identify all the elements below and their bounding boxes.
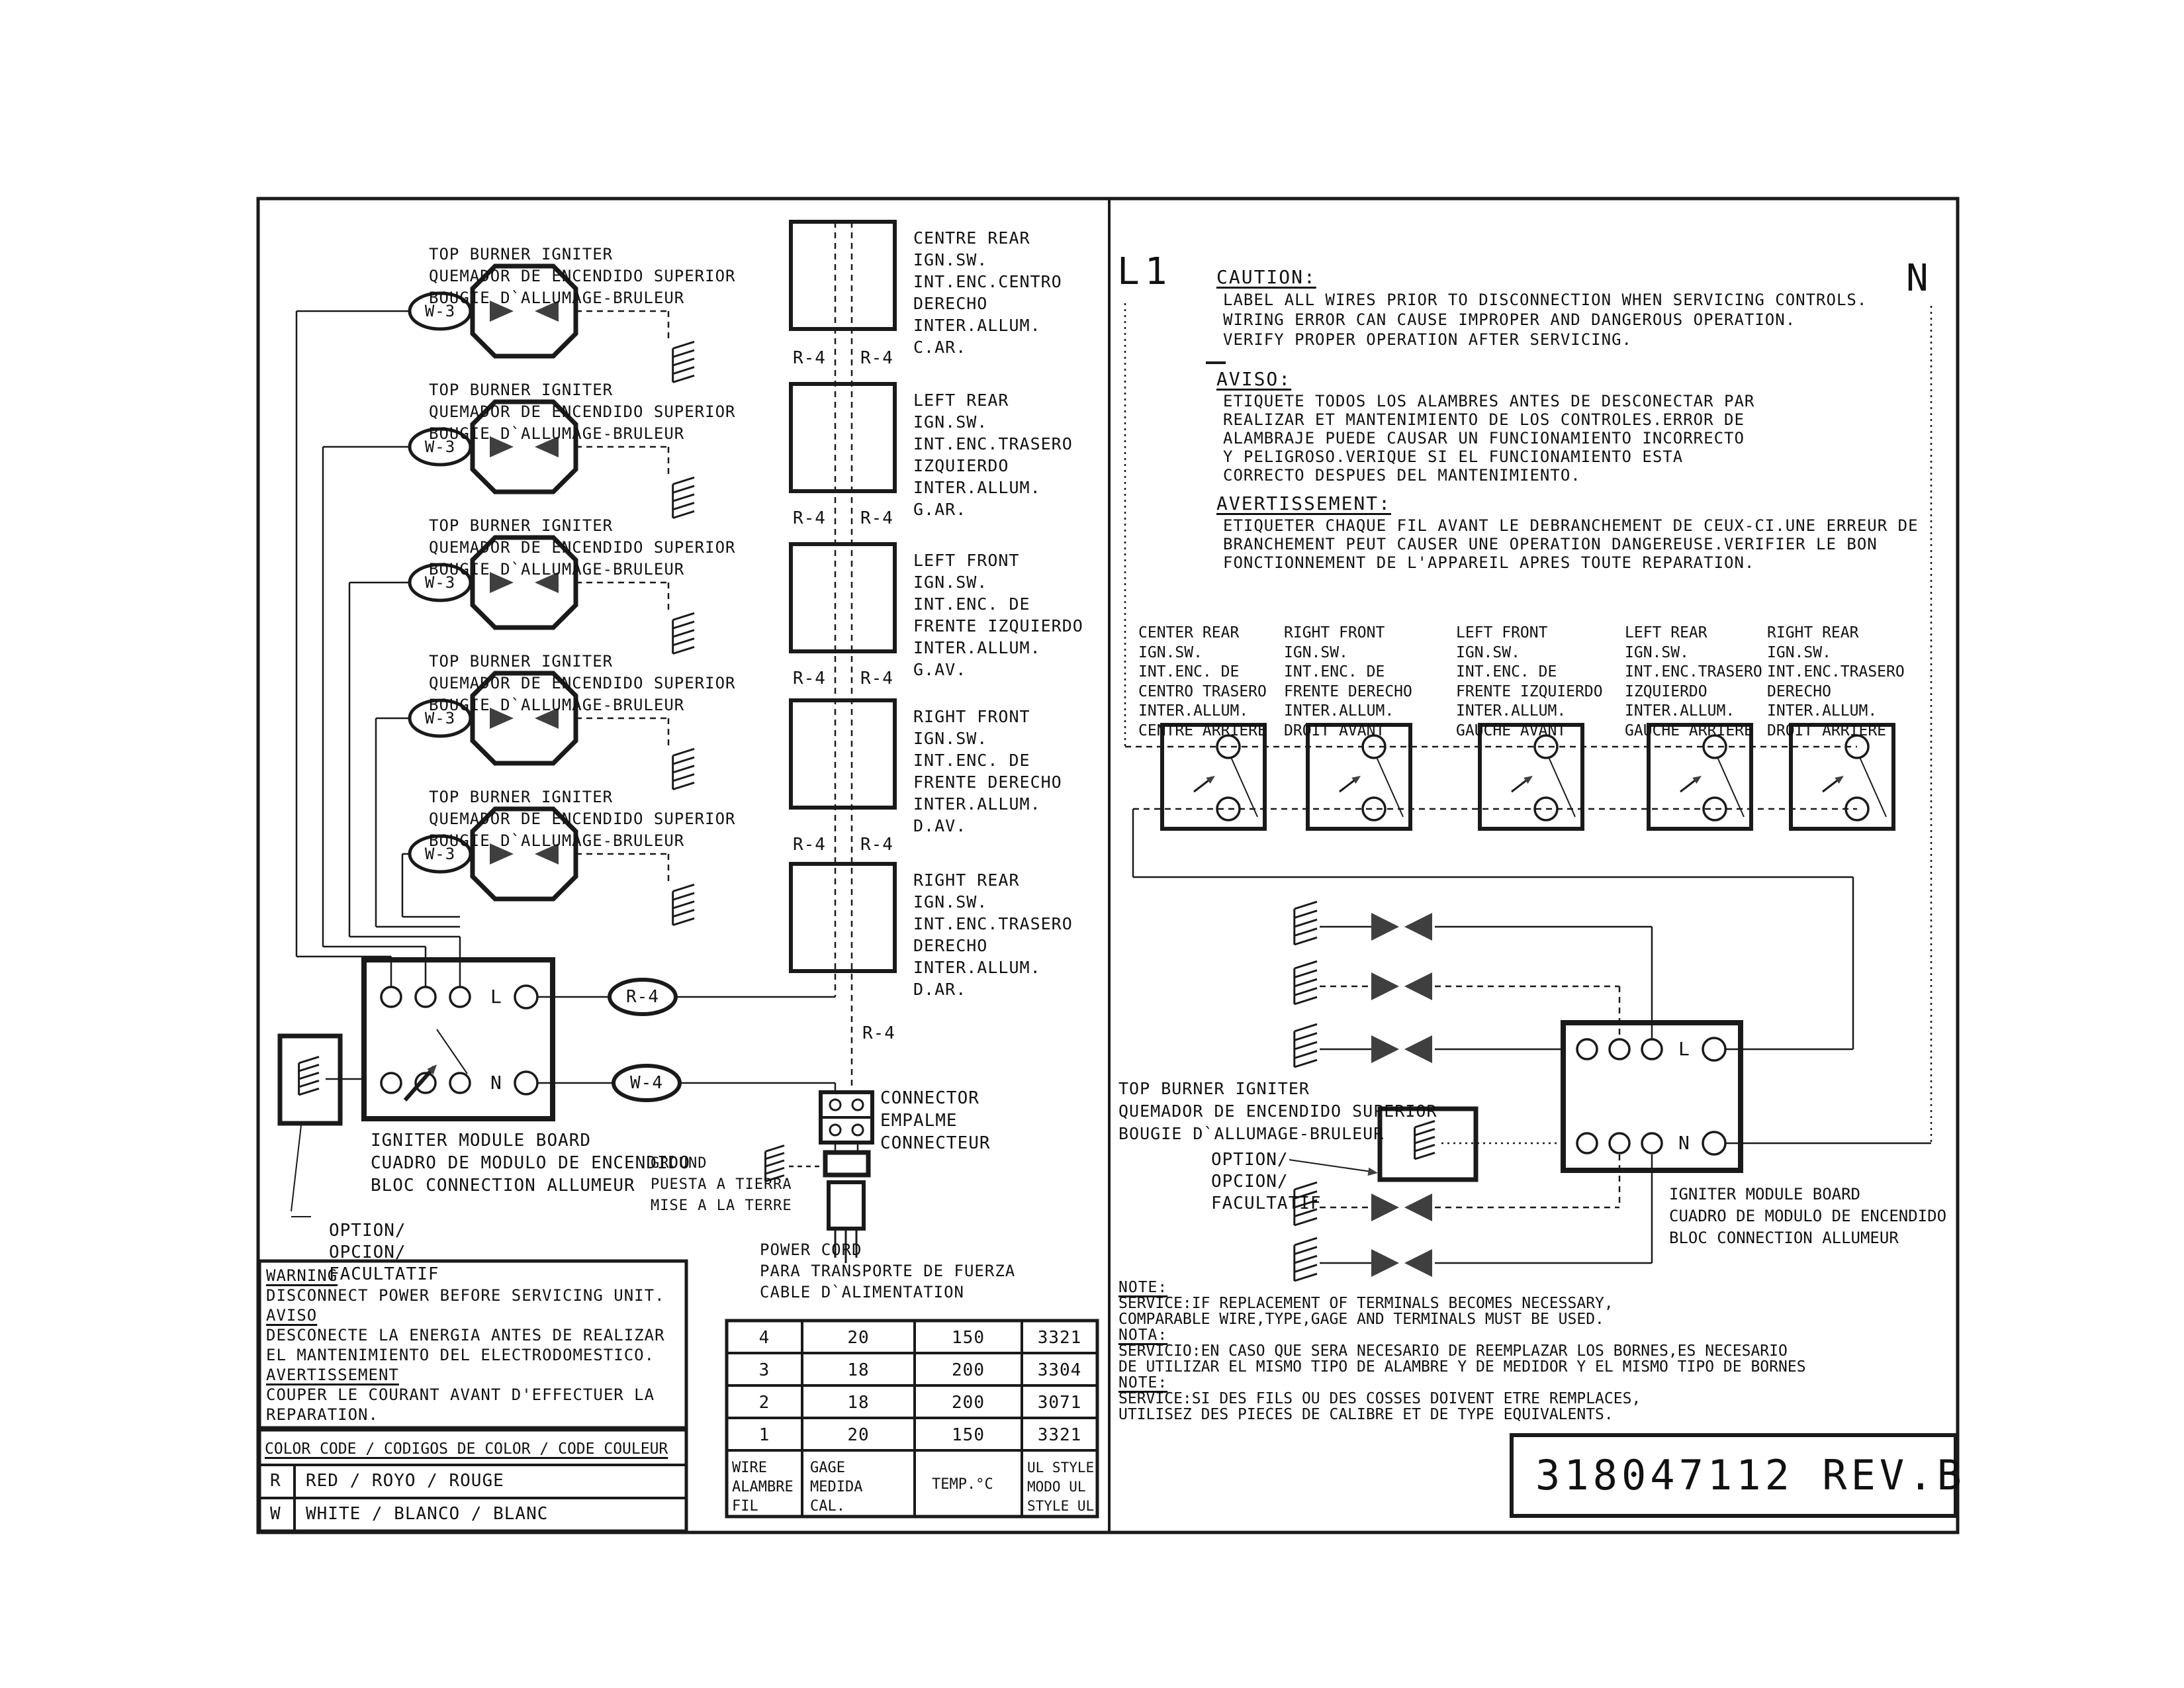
avertissement-text-line: BRANCHEMENT PEUT CAUSER UNE OPERATION DA… [1223, 535, 1919, 553]
connector-label-line: EMPALME [880, 1109, 991, 1132]
spark-gap-icon [1371, 1194, 1432, 1221]
caution-heading: CAUTION: [1216, 266, 1316, 288]
ignition-switch-label-line: RIGHT FRONT [1284, 624, 1412, 643]
ignition-switch-label-line: INTER.ALLUM. [913, 957, 1073, 978]
ignition-switch-label-line: INTER.ALLUM. [913, 314, 1062, 336]
ignition-switch-label-line: FRENTE DERECHO [1284, 682, 1412, 702]
wire-table-cell: 3321 [1038, 1425, 1082, 1445]
option-label-line: OPTION/ [1211, 1149, 1322, 1171]
ignition-switch-box [791, 700, 895, 808]
connector-label-line: CONNECTOR [880, 1087, 991, 1109]
top-burner-igniter-label-line: QUEMADOR DE ENCENDIDO SUPERIOR [429, 401, 735, 423]
igniter-module-board-label-line: BLOC CONNECTION ALLUMEUR [371, 1174, 690, 1197]
ignition-switch-label-line: INT.ENC.TRASERO [1767, 663, 1905, 682]
note-heading: NOTA: [1118, 1327, 1167, 1344]
ignition-switch-label: RIGHT REARIGN.SW.INT.ENC.TRASERODERECHOI… [1767, 624, 1905, 741]
top-burner-igniter-label-line: QUEMADOR DE ENCENDIDO SUPERIOR [1118, 1100, 1437, 1123]
ignition-switch-label-line: IGN.SW. [1138, 643, 1267, 663]
power-plug [829, 1182, 864, 1229]
power-cord-label: POWER CORDPARA TRANSPORTE DE FUERZACABLE… [760, 1239, 1015, 1303]
switch-arm [1860, 757, 1886, 817]
wire-table-cell: 3304 [1038, 1360, 1082, 1380]
wire-table-header-line: ALAMBRE [732, 1477, 794, 1497]
top-burner-igniter-label: TOP BURNER IGNITERQUEMADOR DE ENCENDIDO … [429, 244, 735, 309]
ignition-switch-label-line: DERECHO [1767, 682, 1905, 702]
ground-label-line: GROUND [651, 1153, 792, 1174]
top-burner-igniter-label: TOP BURNER IGNITERQUEMADOR DE ENCENDIDO … [429, 515, 735, 581]
spark-gap-icon [1371, 1249, 1432, 1277]
wire-table-cell: 200 [952, 1360, 985, 1380]
ignition-switch-label-line: DROIT AVANT [1284, 722, 1412, 741]
ignition-switch-label-line: INTER.ALLUM. [913, 477, 1073, 498]
ground-label-line: PUESTA A TIERRA [651, 1174, 792, 1196]
warning-line: COUPER LE COURANT AVANT D'EFFECTUER LA [266, 1385, 655, 1404]
ignition-switch-label-line: IZQUIERDO [1625, 682, 1762, 702]
wire-table-cell: 1 [759, 1425, 770, 1445]
wire-table-cell: 200 [952, 1393, 985, 1413]
wire-table-header-line: UL STYLE [1027, 1458, 1094, 1477]
ground-label: GROUNDPUESTA A TIERRAMISE A LA TERRE [651, 1153, 792, 1217]
strain-relief [825, 1152, 868, 1175]
option-label-line: FACULTATIF [1211, 1193, 1322, 1215]
wire-table-cell: 3321 [1038, 1328, 1082, 1348]
wire-code-r4: R-4 [862, 1023, 895, 1043]
wire-code-r4: R-4 [626, 987, 659, 1007]
ignition-switch-label: LEFT REARIGN.SW.INT.ENC.TRASEROIZQUIERDO… [1625, 624, 1762, 741]
ignition-switch-label-line: INT.ENC. DE [1284, 663, 1412, 682]
caution-text: LABEL ALL WIRES PRIOR TO DISCONNECTION W… [1223, 290, 1867, 350]
aviso-heading: AVISO: [1216, 368, 1291, 390]
wire-code-w3: W-3 [425, 573, 455, 592]
switch-arm [1717, 757, 1744, 817]
caution-text-line: LABEL ALL WIRES PRIOR TO DISCONNECTION W… [1223, 290, 1867, 310]
terminal-l-label: L [490, 986, 502, 1008]
ignition-switch-label-line: IGN.SW. [913, 411, 1073, 433]
wire-code-r4: R-4 [793, 669, 826, 688]
warning-heading: AVERTISSEMENT [266, 1366, 399, 1384]
option-label: OPTION/OPCION/FACULTATIF [1211, 1149, 1322, 1215]
ignition-switch-label-line: INT.ENC. DE [913, 749, 1062, 771]
ignition-switch-label-line: INT.ENC. DE [1456, 663, 1603, 682]
switch-arm [1231, 757, 1257, 817]
ignition-switch-label-line: IGN.SW. [913, 571, 1083, 593]
spark-gap-icon [1371, 1035, 1432, 1063]
ignition-switch-box [791, 864, 895, 971]
spark-gap-icon [1371, 972, 1432, 1000]
ignition-switch-label: LEFT REARIGN.SW.INT.ENC.TRASEROIZQUIERDO… [913, 389, 1073, 520]
caution-text-line: WIRING ERROR CAN CAUSE IMPROPER AND DANG… [1223, 310, 1867, 330]
ground-icon [1295, 1238, 1317, 1281]
wire-code-w3: W-3 [425, 302, 455, 320]
wire-table-cell: 150 [952, 1425, 985, 1445]
ignition-switch-label: LEFT FRONTIGN.SW.INT.ENC. DEFRENTE IZQUI… [913, 549, 1083, 680]
switch-arm [1377, 757, 1403, 817]
ignition-switch-label: CENTRE REARIGN.SW.INT.ENC.CENTRODERECHOI… [913, 227, 1062, 358]
warning-line: DESCONECTE LA ENERGIA ANTES DE REALIZAR [266, 1326, 665, 1344]
ignition-switch-label: RIGHT FRONTIGN.SW.INT.ENC. DEFRENTE DERE… [913, 706, 1062, 837]
power-cord-label-line: PARA TRANSPORTE DE FUERZA [760, 1260, 1015, 1282]
ignition-switch-label-line: INT.ENC.TRASERO [913, 913, 1073, 935]
warning-heading: WARNING [266, 1266, 338, 1285]
wire-table-header-line: MEDIDA [810, 1477, 862, 1497]
option-label: OPTION/OPCION/FACULTATIF [329, 1220, 439, 1286]
ignition-switch-label: RIGHT REARIGN.SW.INT.ENC.TRASERODERECHOI… [913, 869, 1073, 1000]
top-burner-igniter-row [1320, 986, 1619, 1039]
connector-label-line: CONNECTEUR [880, 1132, 991, 1154]
ignition-switch-label-line: INTER.ALLUM. [1138, 702, 1267, 722]
ground-icon [299, 1056, 319, 1095]
ignition-switch-label: RIGHT FRONTIGN.SW.INT.ENC. DEFRENTE DERE… [1284, 624, 1412, 741]
warning-line: EL MANTENIMIENTO DEL ELECTRODOMESTICO. [266, 1346, 655, 1364]
ignition-switch-label-line: LEFT FRONT [913, 549, 1083, 571]
ignition-switch-label-line: D.AV. [913, 815, 1062, 837]
color-code-letter: R [270, 1471, 281, 1491]
note-line: SERVICE:SI DES FILS OU DES COSSES DOIVEN… [1118, 1390, 1641, 1407]
color-code-title: COLOR CODE / CODIGOS DE COLOR / CODE COU… [265, 1440, 668, 1458]
wire-table-header-line: TEMP.°C [932, 1475, 993, 1494]
ignition-switch-label-line: CENTER REAR [1138, 624, 1267, 643]
ignition-switch-label-line: LEFT REAR [913, 389, 1073, 411]
ignition-switch-label: CENTER REARIGN.SW.INT.ENC. DECENTRO TRAS… [1138, 624, 1267, 741]
ignition-switch-label-line: RIGHT REAR [1767, 624, 1905, 643]
ignition-switch-label-line: G.AR. [913, 498, 1073, 520]
igniter-module-board-label-line: IGNITER MODULE BOARD [1669, 1184, 1946, 1205]
ignition-switch-label-line: INTER.ALLUM. [1456, 702, 1603, 722]
wire-table-header-line: FIL [732, 1497, 794, 1516]
warning-line: DISCONNECT POWER BEFORE SERVICING UNIT. [266, 1286, 665, 1305]
top-burner-igniter-label-line: QUEMADOR DE ENCENDIDO SUPERIOR [429, 673, 735, 694]
wire-code-r4: R-4 [860, 348, 893, 368]
avertissement-text: ETIQUETER CHAQUE FIL AVANT LE DEBRANCHEM… [1223, 516, 1919, 572]
arrowhead-icon [1368, 1168, 1378, 1176]
wire-table-cell: 150 [952, 1328, 985, 1348]
top-burner-igniter-label-line: QUEMADOR DE ENCENDIDO SUPERIOR [429, 808, 735, 830]
aviso-text: ETIQUETE TODOS LOS ALAMBRES ANTES DE DES… [1223, 392, 1754, 485]
igniter-module-board-label-line: BLOC CONNECTION ALLUMEUR [1669, 1227, 1946, 1249]
note-line: COMPARABLE WIRE,TYPE,GAGE AND TERMINALS … [1118, 1311, 1604, 1328]
note-line: UTILISEZ DES PIECES DE CALIBRE ET DE TYP… [1118, 1406, 1614, 1423]
top-burner-igniter-label-line: TOP BURNER IGNITER [429, 244, 735, 265]
option-label-line: OPCION/ [329, 1242, 439, 1264]
ignition-switch-label-line: D.AR. [913, 978, 1073, 1000]
color-code-value: WHITE / BLANCO / BLANC [306, 1504, 548, 1524]
igniter-module-board-label: IGNITER MODULE BOARDCUADRO DE MODULO DE … [371, 1129, 690, 1197]
note-heading: NOTE: [1118, 1374, 1167, 1391]
ignition-switch-label-line: IGN.SW. [913, 727, 1062, 749]
ignition-switch-label-line: INT.ENC. DE [1138, 663, 1267, 682]
avertissement-text-line: ETIQUETER CHAQUE FIL AVANT LE DEBRANCHEM… [1223, 516, 1919, 535]
note-line: SERVICE:IF REPLACEMENT OF TERMINALS BECO… [1118, 1295, 1614, 1312]
wire-table-header-line: STYLE UL [1027, 1497, 1094, 1516]
wire-table-cell: 3 [759, 1360, 770, 1380]
option-label-line: OPCION/ [1211, 1171, 1322, 1193]
ignition-switch-label-line: CENTRO TRASERO [1138, 682, 1267, 702]
ignition-switch-label-line: CENTRE REAR [913, 227, 1062, 249]
wire-code-w3: W-3 [425, 709, 455, 727]
ignition-switch-label-line: IGN.SW. [913, 249, 1062, 271]
aviso-text-line: ALAMBRAJE PUEDE CAUSAR UN FUNCIONAMIENTO… [1223, 429, 1754, 447]
option-label-line: FACULTATIF [329, 1264, 439, 1286]
ignition-switch-label-line: CENTRE ARRIERE [1138, 722, 1267, 741]
wire-code-r4: R-4 [793, 835, 826, 855]
wire-table-header-line: GAGE [810, 1458, 862, 1477]
top-burner-igniter-label-line: TOP BURNER IGNITER [429, 651, 735, 673]
wire-code-r4: R-4 [860, 508, 893, 528]
ignition-switch-label-line: IGN.SW. [1456, 643, 1603, 663]
connector-label: CONNECTOREMPALMECONNECTEUR [880, 1087, 991, 1154]
aviso-text-line: ETIQUETE TODOS LOS ALAMBRES ANTES DE DES… [1223, 392, 1754, 410]
ignition-switch-label-line: LEFT FRONT [1456, 624, 1603, 643]
wire-table-header: UL STYLEMODO ULSTYLE UL [1027, 1458, 1094, 1516]
ignition-switch-label-line: GAUCHE AVANT [1456, 722, 1603, 741]
ignition-switch-label-line: INT.ENC.TRASERO [913, 433, 1073, 455]
top-burner-igniter-label-line: QUEMADOR DE ENCENDIDO SUPERIOR [429, 537, 735, 559]
aviso-text-line: Y PELIGROSO.VERIQUE SI EL FUNCIONAMIENTO… [1223, 447, 1754, 466]
caution-text-line: VERIFY PROPER OPERATION AFTER SERVICING. [1223, 330, 1867, 350]
terminal-l-label: L [1678, 1038, 1690, 1060]
switch-arm [405, 1067, 434, 1100]
wire-table-cell: 20 [847, 1328, 869, 1348]
igniter-module-board-label-line: CUADRO DE MODULO DE ENCENDIDO [1669, 1205, 1946, 1227]
ignition-switch-label-line: INT.ENC.TRASERO [1625, 663, 1762, 682]
ignition-switch-label-line: DERECHO [913, 293, 1062, 314]
igniter-module-board [1563, 1023, 1741, 1170]
wire-code-r4: R-4 [860, 835, 893, 855]
warning-line: REPARATION. [266, 1405, 379, 1424]
note-line: SERVICIO:EN CASO QUE SERA NECESARIO DE R… [1118, 1342, 1788, 1360]
ground-icon [1295, 902, 1317, 945]
wire-code-w3: W-3 [425, 845, 455, 863]
spark-gap-icon [1371, 913, 1432, 941]
top-burner-igniter-label-line: TOP BURNER IGNITER [1118, 1078, 1437, 1100]
aviso-text-line: REALIZAR ET MANTENIMIENTO DE LOS CONTROL… [1223, 410, 1754, 429]
ignition-switch-label: LEFT FRONTIGN.SW.INT.ENC. DEFRENTE IZQUI… [1456, 624, 1603, 741]
ignition-switch-label-line: IGN.SW. [1625, 643, 1762, 663]
ignition-switch-label-line: FRENTE DERECHO [913, 771, 1062, 793]
wire-table-header: WIREALAMBREFIL [732, 1458, 794, 1516]
top-burner-igniter-label-line: BOUGIE D`ALLUMAGE-BRULEUR [429, 559, 735, 581]
top-burner-igniter-label: TOP BURNER IGNITERQUEMADOR DE ENCENDIDO … [429, 786, 735, 852]
terminal-n-label: N [490, 1072, 502, 1094]
avertissement-heading: AVERTISSEMENT: [1216, 492, 1391, 514]
ground-icon [673, 342, 694, 382]
wire-table-cell: 3071 [1038, 1393, 1082, 1413]
ground-label-line: MISE A LA TERRE [651, 1196, 792, 1217]
ground-icon [1295, 1024, 1317, 1067]
wire-table-cell: 2 [759, 1393, 770, 1413]
top-burner-igniter-label: TOP BURNER IGNITERQUEMADOR DE ENCENDIDO … [1118, 1078, 1437, 1145]
wire-table-header-line: MODO UL [1027, 1477, 1094, 1497]
top-burner-igniter-label-line: BOUGIE D`ALLUMAGE-BRULEUR [429, 287, 735, 309]
ignition-switch-label-line: IGN.SW. [1767, 643, 1905, 663]
ignition-switch-label-line: LEFT REAR [1625, 624, 1762, 643]
supply-l1-label: L1 [1117, 250, 1172, 293]
wire-table-cell: 18 [847, 1360, 869, 1380]
wire-table-header-line: CAL. [810, 1497, 862, 1516]
ignition-switch-label-line: DERECHO [913, 935, 1073, 957]
option-label-line: OPTION/ [329, 1220, 439, 1242]
aviso-text-line: CORRECTO DESPUES DEL MANTENIMIENTO. [1223, 466, 1754, 485]
terminal-n-label: N [1678, 1132, 1690, 1154]
power-cord-label-line: POWER CORD [760, 1239, 1015, 1260]
top-burner-igniter-label-line: TOP BURNER IGNITER [429, 515, 735, 537]
wire-table-cell: 4 [759, 1328, 770, 1348]
note-heading: NOTE: [1118, 1279, 1167, 1296]
ground-icon [673, 749, 694, 789]
ground-icon [1295, 961, 1317, 1004]
ignition-switch-label-line: IGN.SW. [913, 891, 1073, 913]
top-burner-igniter-label-line: TOP BURNER IGNITER [429, 786, 735, 808]
wire-table-header-line: WIRE [732, 1458, 794, 1477]
ignition-switch-label-line: GAUCHE ARRIERE [1625, 722, 1762, 741]
wire-code-w4: W-4 [630, 1073, 663, 1093]
color-code-letter: W [270, 1504, 281, 1524]
switch-arm [1549, 757, 1575, 817]
wire-table-cell: 18 [847, 1393, 869, 1413]
warning-heading: AVISO [266, 1306, 317, 1325]
ignition-switch-label-line: INTER.ALLUM. [1767, 702, 1905, 722]
ignition-switch-label-line: INTER.ALLUM. [1284, 702, 1412, 722]
top-burner-igniter-label-line: QUEMADOR DE ENCENDIDO SUPERIOR [429, 265, 735, 287]
top-burner-igniter-label: TOP BURNER IGNITERQUEMADOR DE ENCENDIDO … [429, 379, 735, 445]
top-burner-igniter-label-line: BOUGIE D`ALLUMAGE-BRULEUR [429, 830, 735, 852]
igniter-module-board-label-line: IGNITER MODULE BOARD [371, 1129, 690, 1152]
ignition-switch-label-line: INTER.ALLUM. [913, 793, 1062, 815]
note-line: DE UTILIZAR EL MISMO TIPO DE ALAMBRE Y D… [1118, 1358, 1806, 1376]
ignition-switch-label-line: G.AV. [913, 659, 1083, 680]
igniter-module-board-label: IGNITER MODULE BOARDCUADRO DE MODULO DE … [1669, 1184, 1946, 1249]
part-number: 318047112 REV.B [1535, 1451, 1966, 1499]
power-cord-label-line: CABLE D`ALIMENTATION [760, 1282, 1015, 1303]
ground-icon [673, 613, 694, 653]
avertissement-text-line: FONCTIONNEMENT DE L'APPAREIL APRES TOUTE… [1223, 553, 1919, 572]
ignition-switch-label-line: INT.ENC. DE [913, 593, 1083, 615]
ignition-switch-label-line: IGN.SW. [1284, 643, 1412, 663]
ignition-switch-label-line: FRENTE IZQUIERDO [913, 615, 1083, 637]
wire-code-r4: R-4 [860, 669, 893, 688]
ignition-switch-box [791, 544, 895, 651]
top-burner-igniter-label-line: BOUGIE D`ALLUMAGE-BRULEUR [1118, 1123, 1437, 1145]
wiring-diagram-sheet: TOP BURNER IGNITERQUEMADOR DE ENCENDIDO … [0, 0, 2184, 1688]
ignition-switch-label-line: IZQUIERDO [913, 455, 1073, 477]
wire-table-header: TEMP.°C [932, 1475, 993, 1494]
ignition-switch-box [791, 222, 895, 329]
wire-code-r4: R-4 [793, 508, 826, 528]
ignition-switch-label-line: FRENTE IZQUIERDO [1456, 682, 1603, 702]
ground-icon [673, 477, 694, 518]
ignition-switch-label-line: C.AR. [913, 336, 1062, 358]
ignition-switch-label-line: INTER.ALLUM. [1625, 702, 1762, 722]
supply-n-label: N [1906, 257, 1929, 300]
top-burner-igniter-label: TOP BURNER IGNITERQUEMADOR DE ENCENDIDO … [429, 651, 735, 716]
wire-code-w3: W-3 [425, 438, 455, 456]
top-burner-igniter-label-line: BOUGIE D`ALLUMAGE-BRULEUR [429, 694, 735, 716]
ignition-switch-label-line: INT.ENC.CENTRO [913, 271, 1062, 293]
ignition-switch-label-line: DROIT ARRIERE [1767, 722, 1905, 741]
ignition-switch-label-line: RIGHT FRONT [913, 706, 1062, 727]
ground-icon [673, 884, 694, 925]
ignition-switch-label-line: INTER.ALLUM. [913, 637, 1083, 659]
wire-code-r4: R-4 [793, 348, 826, 368]
wire-table-header: GAGEMEDIDACAL. [810, 1458, 862, 1516]
top-burner-igniter-label-line: BOUGIE D`ALLUMAGE-BRULEUR [429, 423, 735, 445]
top-burner-igniter-label-line: TOP BURNER IGNITER [429, 379, 735, 401]
ignition-switch-box [791, 384, 895, 491]
igniter-module-board-label-line: CUADRO DE MODULO DE ENCENDIDO [371, 1152, 690, 1174]
ignition-switch-label-line: RIGHT REAR [913, 869, 1073, 891]
color-code-value: RED / ROYO / ROUGE [306, 1471, 504, 1491]
top-burner-igniter-group [349, 565, 668, 937]
wire-table-cell: 20 [847, 1425, 869, 1445]
